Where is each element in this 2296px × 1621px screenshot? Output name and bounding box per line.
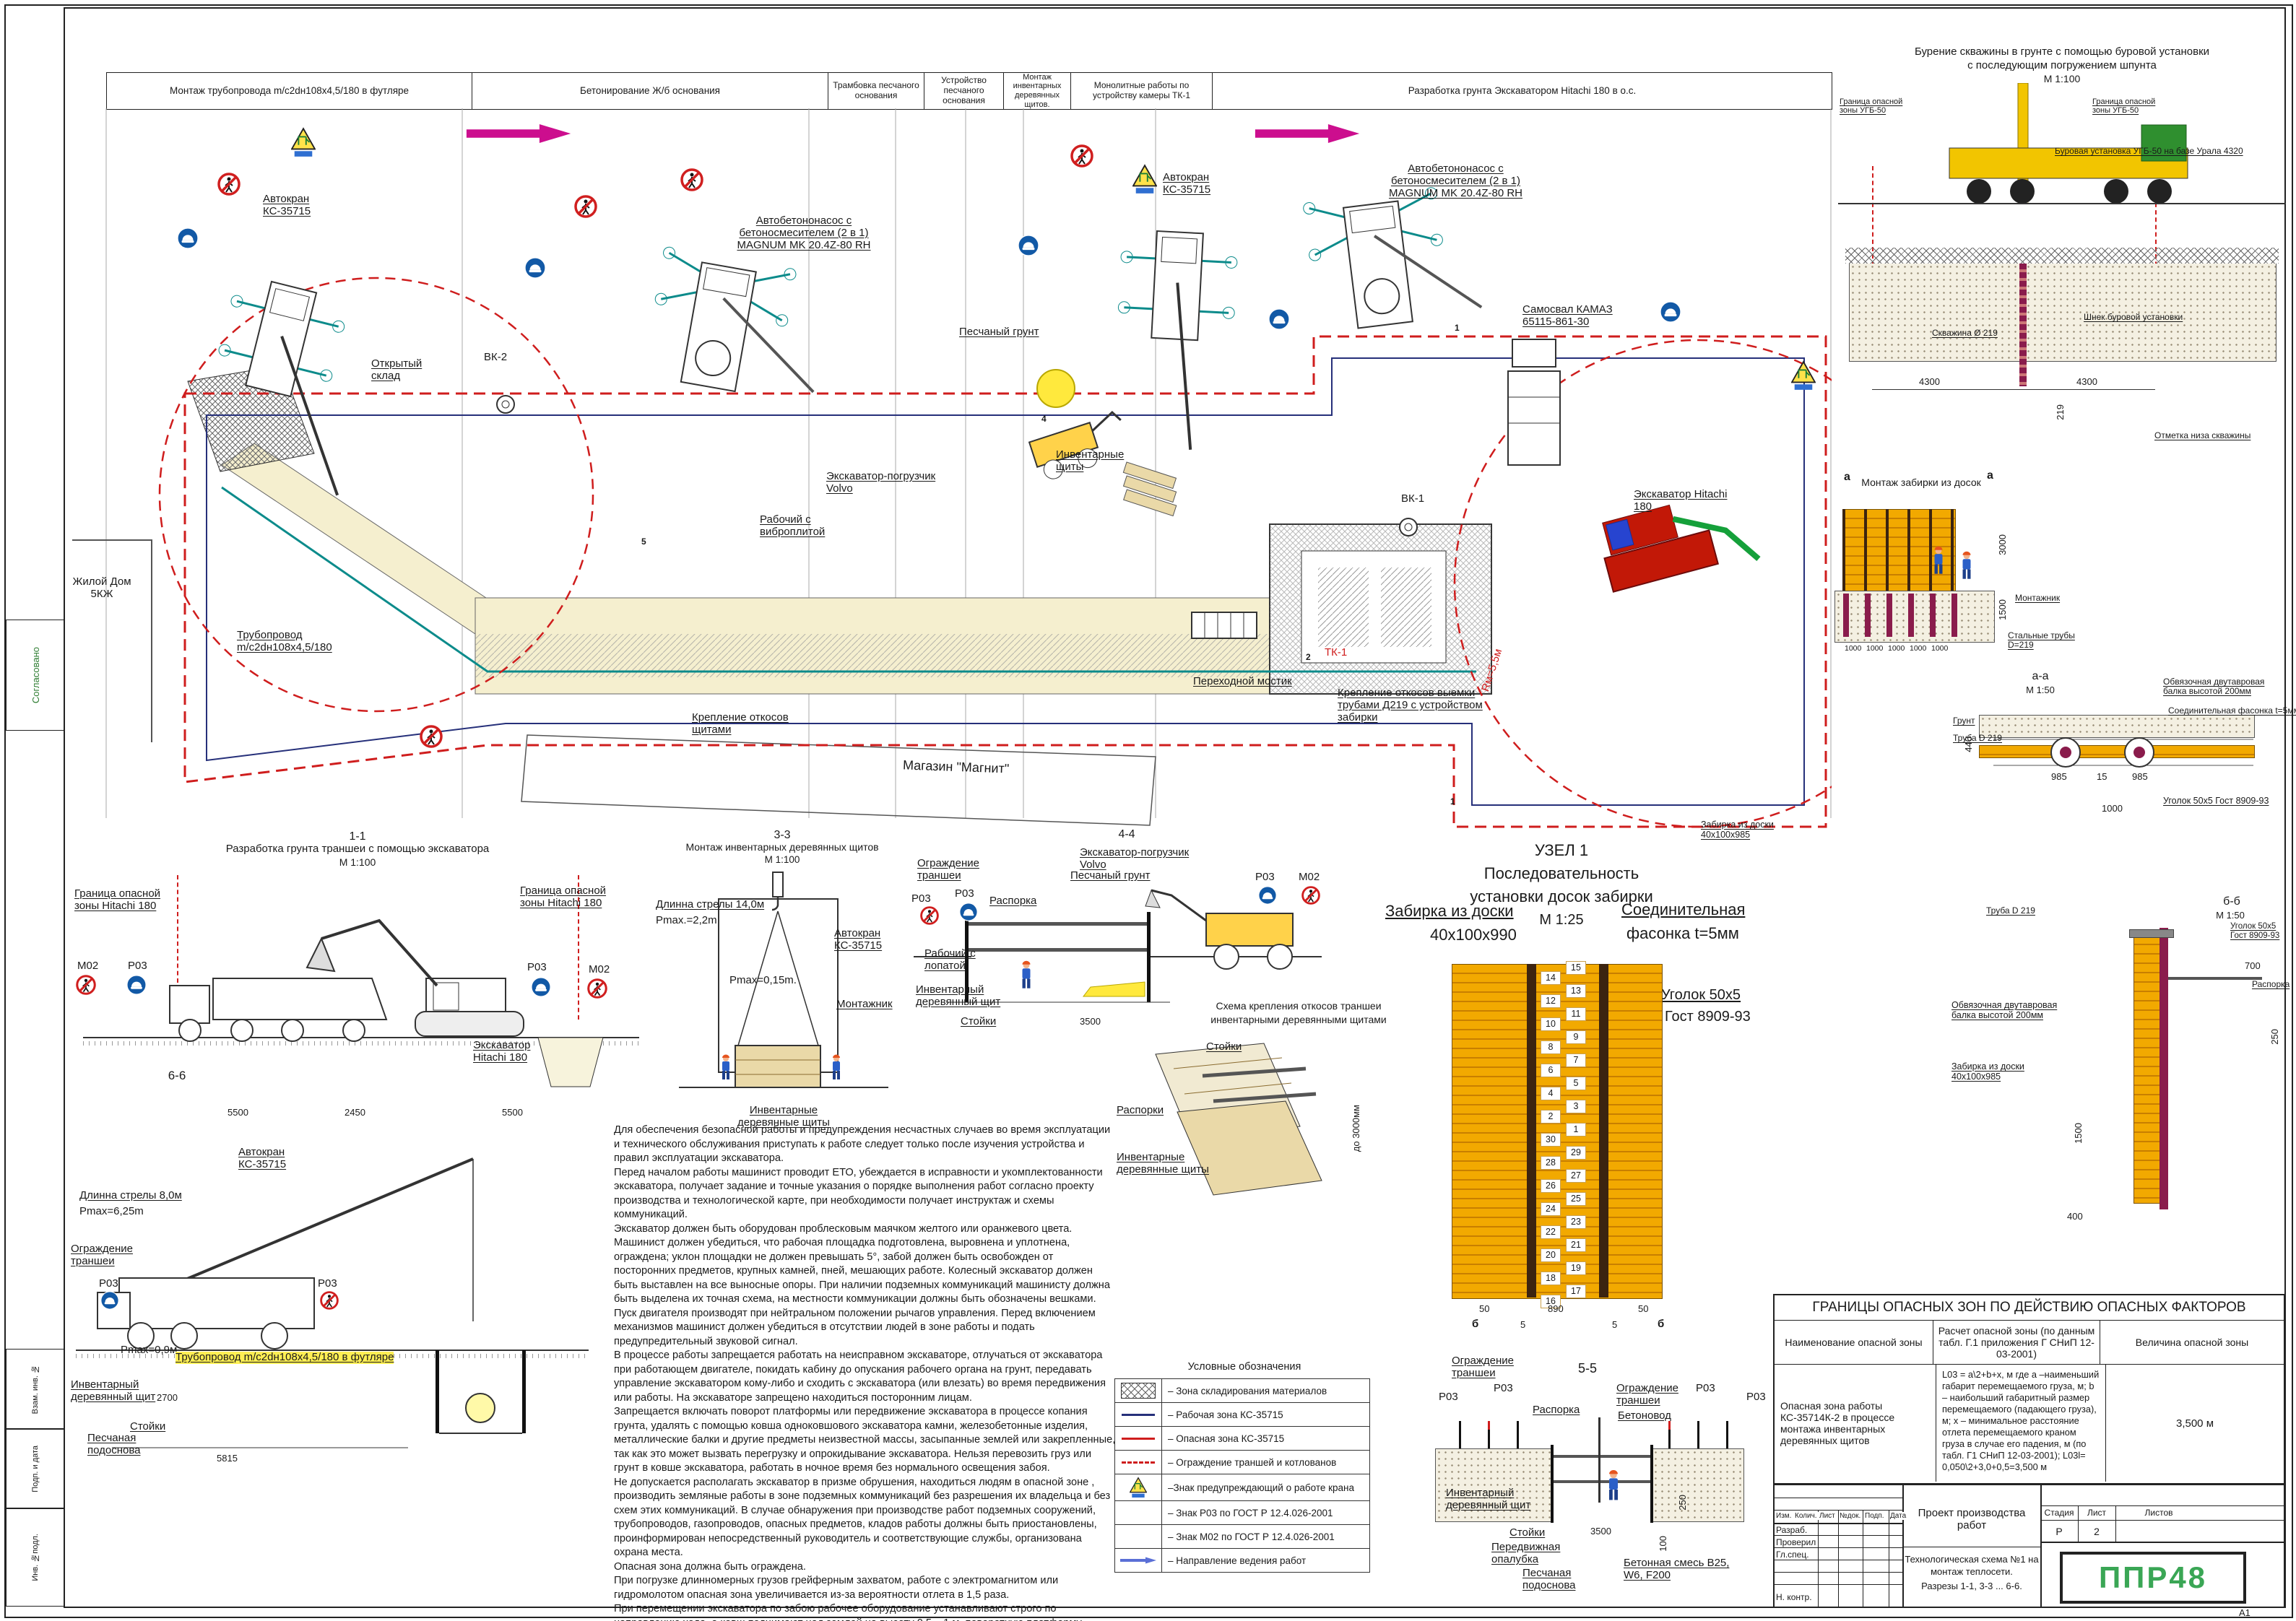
no-pedestrian-sign-icon (574, 195, 597, 218)
section-33-panel: 3-3 Монтаж инвентарных деревянных щитов … (650, 827, 917, 1137)
drilling-title-1: Бурение скважины в грунте с помощью буро… (1915, 45, 2209, 58)
stamp-col-izm: Изм. (1776, 1512, 1793, 1520)
sheeting-dim-1000: 1000 (1888, 644, 1905, 653)
crane-warning-icon (1132, 164, 1157, 194)
s11-scale: М 1:100 (339, 856, 376, 868)
no-pedestrian-sign-icon (587, 978, 607, 999)
aa-dim-985: 985 (2051, 771, 2067, 782)
sheeting-dim-1000: 1000 (1845, 644, 1861, 653)
drilling-panel: Бурение скважины в грунте с помощью буро… (1838, 40, 2286, 451)
s11-p03-right: Р03 (527, 962, 547, 974)
aa-linework (1950, 708, 2289, 794)
stage-col-4: Устройство песчаного основания (924, 73, 1004, 109)
stage-col-1: Монтаж трубопровода m/c2dн108х4,5/180 в … (107, 73, 472, 109)
s55-dim-3500: 3500 (1590, 1526, 1611, 1537)
slope-shields-label: Инвентарные деревянные щиты (1117, 1152, 1210, 1176)
s44-p03r: Р03 (1255, 872, 1275, 884)
plan-label-vk1: ВК-1 (1401, 493, 1424, 505)
sheeting-soil (1834, 591, 1995, 643)
bb-beam-label: Обвязочная двутавровая балка высотой 200… (1951, 1000, 2067, 1020)
side-box-vzam: Взам. инв. № (6, 1349, 65, 1430)
helmet-sign-icon (531, 977, 551, 997)
drilling-rig-label: Буровая установка УГБ-50 на базе Урала 4… (2055, 147, 2243, 156)
safety-paragraph: При погрузке длинномерных грузов грейфер… (614, 1574, 1116, 1602)
drawing-sheet: Согласовано Взам. инв. № Подп. и дата Ин… (0, 0, 2296, 1621)
board-number: 5 (1566, 1077, 1586, 1090)
board-number: 23 (1566, 1215, 1586, 1229)
s33-scale: М 1:100 (765, 854, 800, 865)
s11-title: Разработка грунта траншеи с помощью экск… (226, 843, 490, 855)
sheeting-dim-1000: 1000 (1866, 644, 1883, 653)
plan-label-vibro-worker: Рабочий с виброплитой (760, 514, 872, 539)
board-number: 21 (1566, 1238, 1586, 1252)
board-number: 8 (1541, 1040, 1561, 1054)
sheeting-dim-1000: 1000 (1931, 644, 1948, 653)
board-number: 4 (1541, 1087, 1561, 1100)
s44-p03b: Р03 (955, 888, 974, 900)
ppr48-logo-text: ППР48 (2099, 1560, 2207, 1595)
stage-value: Р (2040, 1526, 2078, 1537)
s11-m02-label: М02 (77, 960, 98, 973)
no-pedestrian-sign-icon (1070, 144, 1093, 168)
sheeting-fitter-label: Монтажник (2015, 594, 2060, 603)
sheet-header-label: Лист (2078, 1508, 2115, 1518)
uzel1-numbers-right: 15 13 11 9 7 5 3 1 29 27 25 23 21 19 17 (1566, 961, 1586, 1298)
board-number: 25 (1566, 1192, 1586, 1206)
stage-col-7: Разработка грунта Экскаватором Hitachi 1… (1213, 73, 1832, 109)
trench-fence-swatch (1122, 1461, 1155, 1464)
board-number: 12 (1541, 994, 1561, 1008)
plan-label-hitachi: Экскаватор Hitachi 180 (1634, 489, 1731, 513)
helmet-sign-icon (126, 975, 147, 995)
s55-p03d: Р03 (1746, 1391, 1766, 1404)
borehole-auger (2019, 264, 2027, 386)
slope-height-dim: до 3000мм (1351, 1105, 1361, 1152)
stage-col-2: Бетонирование Ж/б основания (472, 73, 828, 109)
s55-p03b: Р03 (1439, 1391, 1458, 1404)
format-label: А1 (2239, 1607, 2250, 1618)
stage-col-5: Монтаж инвентарных деревянных щитов. (1004, 73, 1071, 109)
aa-dim-1000: 1000 (2102, 803, 2123, 814)
drilling-borehole-label: Скважина Ø 219 (1932, 329, 1998, 338)
plan-label-residential: Жилой Дом 5КЖ (72, 576, 131, 601)
drilling-dim-4300-left: 4300 (1919, 376, 1940, 387)
well-vk1 (1400, 518, 1417, 536)
s66-p03b: Р03 (318, 1278, 337, 1290)
aa-gusset-label: Соединительная фасонка t=5мм (2168, 706, 2296, 716)
worker-icon (1605, 1469, 1622, 1501)
legend-item-label: –Знак предупреждающий о работе крана (1162, 1482, 1369, 1493)
section-mark-a-left: а (1844, 471, 1850, 484)
drilling-dim-219: 219 (2055, 404, 2066, 420)
plan-label-slope-shields: Крепление откосов щитами (692, 712, 818, 736)
s44-m02r: М02 (1299, 872, 1320, 884)
section-mark-5: 5 (641, 537, 646, 547)
s66-pipe-label: Трубопровод m/c2dн108х4,5/180 в футляре (176, 1352, 394, 1364)
uzel1-mark-b: б (1472, 1318, 1478, 1330)
s66-linework (69, 1083, 596, 1466)
slope-stands-label: Стойки (1206, 1041, 1242, 1053)
plan-label-storage: Открытый склад (371, 358, 451, 383)
legend-item-label: – Направление ведения работ (1162, 1555, 1369, 1566)
s44-stands-label: Стойки (961, 1016, 996, 1028)
stamp-col-podp: Подп. (1865, 1512, 1886, 1520)
s66-crane-label: Автокран КС-35715 (238, 1147, 318, 1171)
plan-label-crane-1: Автокран КС-35715 (263, 194, 346, 218)
uzel1-mark-b2: б (1658, 1318, 1664, 1330)
title-block: Изм. Колич. Лист №док. Подп. Дата Разраб… (1773, 1484, 2285, 1608)
bb-title: б-б (2223, 895, 2240, 908)
safety-paragraph: Не допускается располагать экскаватор в … (614, 1476, 1116, 1560)
uzel1-numbers-left: 14 12 10 8 6 4 2 30 28 26 24 22 20 18 16 (1541, 971, 1561, 1308)
s44-spacer-label: Распорка (989, 895, 1036, 908)
board-number: 15 (1566, 961, 1586, 975)
uzel1-dim-5: 5 (1520, 1319, 1525, 1330)
dim-line (2020, 389, 2155, 390)
s55-p03c: Р03 (1696, 1383, 1715, 1395)
side-box-podp: Подп. и дата (6, 1428, 65, 1509)
board-number: 3 (1566, 1100, 1586, 1113)
plan-label-pump-1: Автобетононасос с бетоносмесителем (2 в … (721, 215, 887, 251)
safety-paragraph: При перемещении экскаватора по забою раб… (614, 1602, 1116, 1621)
safety-paragraph: Машинист должен убедиться, что рабочая п… (614, 1236, 1116, 1307)
board-number: 13 (1566, 984, 1586, 998)
uzel1-gusset2: фасонка t=5мм (1626, 925, 1739, 943)
drilling-auger-label: Шнек буровой установки (2084, 313, 2183, 322)
plan-label-vk2: ВК-2 (484, 352, 507, 364)
s66-dim-2700: 2700 (157, 1392, 178, 1403)
s44-p03a: Р03 (911, 893, 931, 905)
plan-label-sand: Песчаный грунт (959, 326, 1039, 339)
s33-pmax1: Pmax.=2,2m (656, 915, 717, 927)
uzel1-corner1: Уголок 50х5 (1661, 987, 1741, 1003)
legend-item-label: – Опасная зона КС-35715 (1162, 1433, 1369, 1444)
worker-icon (1931, 546, 1946, 575)
bb-scale: М 1:50 (2216, 910, 2245, 921)
sheeting-title: Монтаж забирки из досок (1861, 477, 1980, 488)
s55-spacer-label: Распорка (1533, 1404, 1580, 1417)
stamp-col-list: Лист (1819, 1512, 1837, 1520)
board-number: 14 (1541, 971, 1561, 985)
legend-item-label: – Знак М02 по ГОСТ Р 12.4.026-2001 (1162, 1531, 1369, 1542)
concrete-pump-1 (642, 246, 834, 405)
s44-sand-label: Песчаный грунт (1070, 870, 1151, 882)
uzel1-board1: Забирка из доски (1385, 903, 1514, 921)
well-vk2 (497, 396, 514, 413)
sheeting-dim-1500: 1500 (1997, 599, 2008, 620)
s33-num: 3-3 (774, 829, 790, 842)
board-number: 10 (1541, 1017, 1561, 1031)
safety-paragraph: Пуск двигателя производят при нейтрально… (614, 1307, 1116, 1350)
danger-row-name: Опасная зона работы КС-35714К-2 в процес… (1775, 1365, 1936, 1482)
s44-shield-label: Инвентарный деревянный щит (916, 984, 1024, 1009)
danger-col-value: Величина опасной зоны (2100, 1321, 2284, 1364)
drilling-title-2: с последующим погружением шпунта (1967, 59, 2157, 71)
s66-base-label: Песчаная подоснова (87, 1433, 174, 1457)
s55-base-label: Песчаная подоснова (1522, 1568, 1602, 1592)
worker-icon (829, 1054, 844, 1080)
s33-title: Монтаж инвентарных деревянных щитов (685, 841, 878, 853)
board-sheeting-panel: Монтаж забирки из досок а а 3000 1500 10… (1834, 455, 2289, 664)
stage-header-label: Стадия (2040, 1508, 2078, 1518)
s11-p03-label: Р03 (128, 960, 147, 973)
helmet-sign-icon (1018, 235, 1039, 256)
s44-dim-3500: 3500 (1080, 1016, 1101, 1027)
no-pedestrian-sign-icon (1301, 886, 1320, 905)
uzel1-dim-5b: 5 (1612, 1319, 1617, 1330)
inv-label: Инв. №подл. (31, 1534, 40, 1581)
safety-paragraph: Опасная зона должна быть ограждена. (614, 1560, 1116, 1575)
helmet-sign-icon (959, 903, 978, 921)
board-number: 2 (1541, 1110, 1561, 1124)
stage-header: Монтаж трубопровода m/c2dн108х4,5/180 в … (106, 72, 1832, 110)
s66-pmax1: Pmax=6,25m (79, 1206, 144, 1218)
helmet-sign-icon (1258, 886, 1277, 905)
plan-label-bridge: Переходной мостик (1193, 676, 1292, 688)
s66-num: 6-6 (168, 1069, 186, 1083)
section-mark-4: 4 (1041, 414, 1047, 424)
section-mark-a-right: а (1987, 469, 1993, 482)
residential-building-outline (72, 540, 152, 742)
magnit-store-outline (521, 735, 1156, 825)
plan-label-volvo: Экскаватор-погрузчик Volvo (826, 471, 949, 495)
uzel1-gusset1: Соединительная (1621, 901, 1745, 919)
side-box-approved: Согласовано (6, 620, 65, 731)
s66-shield-label: Инвентарный деревянный щит (71, 1379, 165, 1404)
plan-label-pipeline: Трубопровод m/c2dн108х4,5/180 (237, 630, 360, 654)
bb-pipe-label: Труба D 219 (1986, 906, 2035, 916)
s44-fence-label: Ограждение траншеи (917, 858, 989, 882)
slope-title-2: инвентарными деревянными щитами (1210, 1014, 1386, 1025)
s11-m02-right: М02 (589, 964, 610, 976)
podp-label: Подп. и дата (31, 1446, 40, 1492)
section-mark-2: 2 (1306, 653, 1311, 662)
board-number: 30 (1541, 1133, 1561, 1147)
s66-fence-label: Ограждение траншеи (71, 1243, 147, 1268)
aa-dim-15: 15 (2097, 771, 2107, 782)
board-number: 17 (1566, 1285, 1586, 1298)
uzel1-scale: М 1:25 (1539, 912, 1583, 929)
s55-dim-250: 250 (1677, 1495, 1688, 1511)
slope-scheme-panel: Схема крепления откосов траншеи инвентар… (1112, 996, 1398, 1206)
board-number: 24 (1541, 1202, 1561, 1216)
s55-p03a: Р03 (1494, 1383, 1513, 1395)
board-number: 29 (1566, 1146, 1586, 1160)
s55-stands-label: Стойки (1509, 1527, 1545, 1539)
board-number: 26 (1541, 1179, 1561, 1193)
aa-dim-985b: 985 (2132, 771, 2148, 782)
safety-paragraph: Перед началом работы машинист проводит Е… (614, 1166, 1116, 1222)
uzel1-dim-890: 890 (1548, 1303, 1564, 1314)
project-name: Проект производства работ (1905, 1507, 2039, 1531)
aa-ground-label: Грунт (1953, 716, 1975, 726)
danger-row-value: 3,500 м (2106, 1365, 2284, 1482)
uzel1-corner2: Гост 8909-93 (1665, 1009, 1751, 1025)
direction-arrow-icon (1120, 1556, 1156, 1565)
section-66-panel: 6-6 Автокран КС-35715 Длинна стрелы 8,0м… (69, 1061, 596, 1466)
slope-spacers-label: Распорки (1117, 1105, 1164, 1117)
stamp-col-kolich: Колич. (1795, 1512, 1819, 1520)
no-pedestrian-sign-icon (680, 168, 703, 191)
s44-worker-label: Рабочий с лопатой (924, 948, 1004, 973)
s55-mix-label: Бетонная смесь В25, W6, F200 (1624, 1557, 1739, 1582)
safety-text-block: Для обеспечения безопасной работы и пред… (614, 1124, 1116, 1607)
s66-p03: Р03 (99, 1278, 118, 1290)
bb-corner-label: Уголок 50х5 Гост 8909-93 (2230, 922, 2287, 941)
storage-hatch-swatch (1121, 1383, 1156, 1399)
stamp-row-proveril: Проверил (1776, 1537, 1817, 1547)
danger-col-name: Наименование опасной зоны (1775, 1321, 1933, 1364)
plan-label-slope-pipes: Крепление откосов выемки трубами Д219 с … (1338, 687, 1504, 723)
crane-warning-icon (291, 127, 316, 157)
approved-label: Согласовано (30, 647, 41, 703)
board-number: 9 (1566, 1030, 1586, 1044)
plan-label-kamaz: Самосвал КАМАЗ 65115-861-30 (1522, 304, 1627, 329)
no-pedestrian-sign-icon (420, 725, 443, 748)
bb-board-label: Забирка из доски 40х100х985 (1951, 1061, 2060, 1082)
s55-formwork-label: Передвижная опалубка (1491, 1542, 1585, 1566)
board-number: 28 (1541, 1156, 1561, 1170)
safety-paragraph: В процессе работы запрещается работать н… (614, 1349, 1116, 1405)
no-pedestrian-sign-icon (920, 906, 939, 925)
bb-dim-700: 700 (2245, 960, 2261, 971)
plan-label-tk1: ТК-1 (1325, 647, 1347, 659)
concrete-pump-2 (1303, 183, 1482, 333)
plan-label-pump-2: Автобетононасос с бетоносмесителем (2 в … (1371, 163, 1541, 199)
danger-row-calc: L03 = a\2+b+x, м где а –наименьший габар… (1936, 1365, 2106, 1482)
s11-excavator-label: Экскаватор Hitachi 180 (473, 1040, 560, 1064)
section-55-panel: 5-5 Ограждение траншеи Р03 Р03 Распорка … (1401, 1354, 1777, 1599)
safety-paragraph: Запрещается включать поворот платформы и… (614, 1405, 1116, 1476)
section-aa-panel: а-а М 1:50 Грунт Труба D 219 Обвязочная … (1950, 664, 2289, 841)
uzel1-sub1: Последовательность (1484, 864, 1639, 883)
aa-corner-label: Уголок 50х5 Гост 8909-93 (2163, 796, 2282, 806)
helmet-sign-icon (1660, 301, 1681, 323)
bb-spacer-bar (2168, 977, 2262, 980)
danger-zone-swatch (1122, 1438, 1155, 1440)
s55-fence-right: Ограждение траншеи (1616, 1383, 1689, 1407)
ppr48-logo: ППР48 (2060, 1552, 2246, 1604)
aa-beam-label: Обвязочная двутавровая балка высотой 200… (2163, 677, 2289, 697)
safety-paragraph: Экскаватор должен быть оборудован пробле… (614, 1222, 1116, 1237)
sand-pile (1037, 370, 1075, 407)
bb-pipe (2159, 928, 2168, 1209)
danger-zone-table: ГРАНИЦЫ ОПАСНЫХ ЗОН ПО ДЕЙСТВИЮ ОПАСНЫХ … (1773, 1294, 2285, 1485)
legend-item-label: – Рабочая зона КС-35715 (1162, 1409, 1369, 1420)
stamp-row-razrab: Разраб. (1776, 1525, 1808, 1535)
doc-title-1: Технологическая схема №1 на монтаж тепло… (1905, 1554, 2039, 1578)
work-zone-swatch (1122, 1414, 1155, 1416)
s33-boom-label: Длинна стрелы 14,0м (656, 899, 764, 911)
stage-col-3: Трамбовка песчаного основания (828, 73, 924, 109)
board-number: 11 (1566, 1007, 1586, 1021)
worker-icon (1959, 551, 1975, 580)
bb-dim-250: 250 (2269, 1029, 2280, 1045)
helmet-sign-icon (177, 227, 199, 249)
s33-crane-label: Автокран КС-35715 (834, 928, 914, 952)
aa-pipe-label: Труба D 219 (1953, 734, 2002, 743)
helmet-sign-icon (524, 257, 546, 279)
s33-fitter-label: Монтажник (836, 999, 893, 1011)
board-number: 7 (1566, 1053, 1586, 1067)
s11-num: 1-1 (349, 830, 365, 843)
safety-paragraph: Для обеспечения безопасной работы и пред… (614, 1124, 1116, 1166)
helmet-sign-icon (100, 1291, 119, 1310)
board-number: 20 (1541, 1248, 1561, 1262)
board-number: 27 (1566, 1169, 1586, 1183)
legend-panel: Условные обозначения – Зона складировани… (1114, 1361, 1374, 1574)
section-mark-1b: 1 (1450, 797, 1455, 807)
uzel1-board2: 40х100х990 (1430, 926, 1517, 944)
helmet-sign-icon (1268, 308, 1290, 330)
stamp-row-glspec: Гл.спец. (1776, 1550, 1811, 1560)
aa-title: а-а (2032, 670, 2048, 683)
aa-dim-440: 440 (1963, 736, 1974, 752)
board-number: 18 (1541, 1272, 1561, 1285)
section-bb-panel: б-б М 1:50 Труба D 219 Уголок 50х5 Гост … (1943, 892, 2288, 1246)
foot-bridge (1192, 612, 1257, 638)
bb-boards (2133, 935, 2161, 1204)
stamp-col-ndok: №док. (1840, 1512, 1862, 1520)
s33-pmax2: Pmax=0,15m. (729, 975, 797, 987)
section-mark-1: 1 (1455, 323, 1460, 333)
s55-dim-100: 100 (1658, 1536, 1668, 1552)
sheeting-dim-3000: 3000 (1997, 534, 2008, 555)
s66-boom-label: Длинна стрелы 8,0м (79, 1190, 182, 1202)
uzel1-dim-50b: 50 (1638, 1303, 1648, 1314)
truck-crane-2 (1111, 229, 1238, 451)
legend-item-label: – Зона складирования материалов (1162, 1386, 1369, 1396)
aa-scale: М 1:50 (2026, 685, 2055, 695)
bb-dim-1500: 1500 (2073, 1123, 2084, 1144)
drilling-bottom-label: Отметка низа скважины (2154, 431, 2250, 440)
s66-pmax2: Pmax=0,9м (121, 1344, 177, 1357)
bb-dim-400: 400 (2067, 1211, 2083, 1222)
worker-icon (719, 1054, 733, 1080)
legend-item-label: – Ограждение траншей и котлованов (1162, 1457, 1369, 1468)
dump-truck-kamaz (1508, 339, 1560, 465)
crane-warning-icon (1791, 360, 1816, 391)
drilling-soil (1849, 264, 2276, 362)
sheeting-dim-1000: 1000 (1910, 644, 1926, 653)
danger-col-calc: Расчет опасной зоны (по данным табл. Г.1… (1933, 1321, 2100, 1364)
s55-num: 5-5 (1578, 1361, 1597, 1376)
legend-title: Условные обозначения (1188, 1361, 1301, 1373)
uzel1-panel: УЗЕЛ 1 Последовательность установки досо… (1372, 827, 1788, 1347)
side-box-inv: Инв. №подл. (6, 1508, 65, 1607)
s55-pipe-label: Бетоновод (1618, 1410, 1671, 1422)
sheet-number: 2 (2078, 1526, 2115, 1537)
crane-warning-icon (1130, 1477, 1147, 1498)
danger-table-title: ГРАНИЦЫ ОПАСНЫХ ЗОН ПО ДЕЙСТВИЮ ОПАСНЫХ … (1775, 1295, 2284, 1321)
legend-item-label: – Знак Р03 по ГОСТ Р 12.4.026-2001 (1162, 1508, 1369, 1518)
s55-shield-label: Инвентарный деревянный щит (1446, 1487, 1540, 1512)
board-number: 6 (1541, 1064, 1561, 1077)
s55-concrete-pipe (1598, 1417, 1600, 1503)
uzel1-num: УЗЕЛ 1 (1535, 841, 1588, 860)
bb-beam (2129, 929, 2174, 938)
slope-title-1: Схема крепления откосов траншеи (1216, 1000, 1381, 1012)
s55-soil-right (1652, 1448, 1744, 1522)
plan-label-shields: Инвентарные щиты (1056, 449, 1139, 474)
board-number: 1 (1566, 1123, 1586, 1137)
s66-dim-5815: 5815 (217, 1453, 238, 1464)
plan-label-crane-2: Автокран КС-35715 (1163, 172, 1246, 196)
sheeting-pipes-label: Стальные трубы D=219 (2008, 631, 2102, 651)
legend-table: – Зона складирования материалов – Рабоча… (1114, 1378, 1370, 1573)
vzam-label: Взам. инв. № (31, 1365, 40, 1414)
board-number: 19 (1566, 1261, 1586, 1275)
